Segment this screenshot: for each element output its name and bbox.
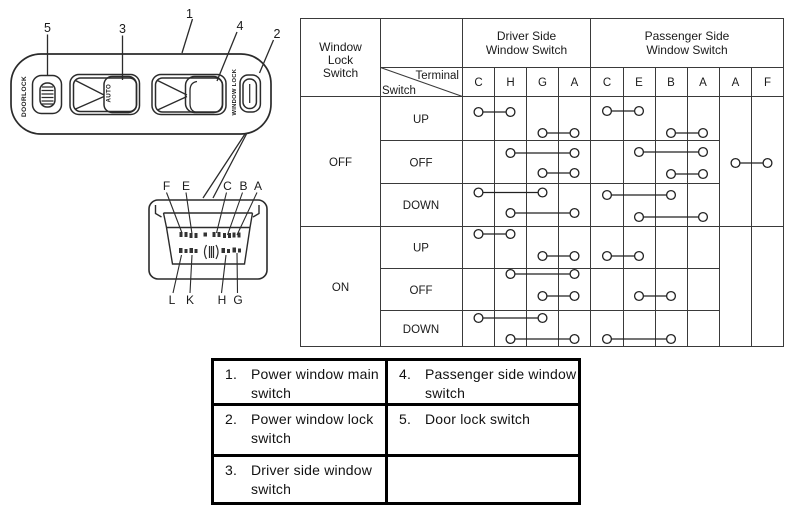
svg-text:E: E (182, 179, 190, 193)
svg-text:H: H (506, 77, 514, 89)
svg-text:C: C (603, 77, 611, 89)
svg-text:Terminal: Terminal (416, 70, 459, 82)
svg-text:WINDOW LOCK: WINDOW LOCK (232, 68, 238, 115)
svg-text:Driver Side: Driver Side (497, 29, 557, 43)
svg-text:OFF: OFF (410, 158, 433, 170)
svg-text:5: 5 (44, 21, 51, 35)
svg-text:OFF: OFF (410, 285, 433, 297)
svg-text:B: B (239, 179, 247, 193)
svg-text:K: K (186, 293, 194, 307)
svg-text:ON: ON (332, 282, 349, 294)
svg-text:B: B (667, 77, 675, 89)
svg-text:2: 2 (274, 27, 281, 41)
svg-text:G: G (538, 77, 547, 89)
svg-text:Window: Window (319, 40, 362, 54)
svg-text:Window Switch: Window Switch (486, 43, 567, 57)
svg-text:Window Switch: Window Switch (646, 43, 727, 57)
svg-text:E: E (635, 77, 643, 89)
svg-text:G: G (233, 293, 242, 307)
svg-text:C: C (223, 179, 232, 193)
svg-text:A: A (254, 179, 262, 193)
svg-text:3: 3 (119, 22, 126, 36)
svg-text:L: L (169, 293, 176, 307)
svg-text:F: F (163, 179, 170, 193)
svg-text:F: F (764, 77, 771, 89)
svg-text:A: A (571, 77, 579, 89)
svg-text:OFF: OFF (329, 157, 352, 169)
svg-text:DOORLOCK: DOORLOCK (21, 76, 28, 117)
svg-text:A: A (732, 77, 740, 89)
svg-text:DOWN: DOWN (403, 324, 439, 336)
svg-text:UP: UP (413, 114, 429, 126)
svg-text:Switch: Switch (323, 66, 358, 80)
svg-text:4: 4 (237, 19, 244, 33)
svg-text:Passenger Side: Passenger Side (645, 29, 730, 43)
svg-text:DOWN: DOWN (403, 200, 439, 212)
svg-text:UP: UP (413, 243, 429, 255)
svg-text:C: C (474, 77, 482, 89)
svg-text:H: H (218, 293, 227, 307)
svg-text:AUTO: AUTO (106, 84, 113, 103)
svg-text:Switch: Switch (382, 85, 416, 97)
svg-text:A: A (699, 77, 707, 89)
svg-text:Lock: Lock (328, 53, 354, 67)
